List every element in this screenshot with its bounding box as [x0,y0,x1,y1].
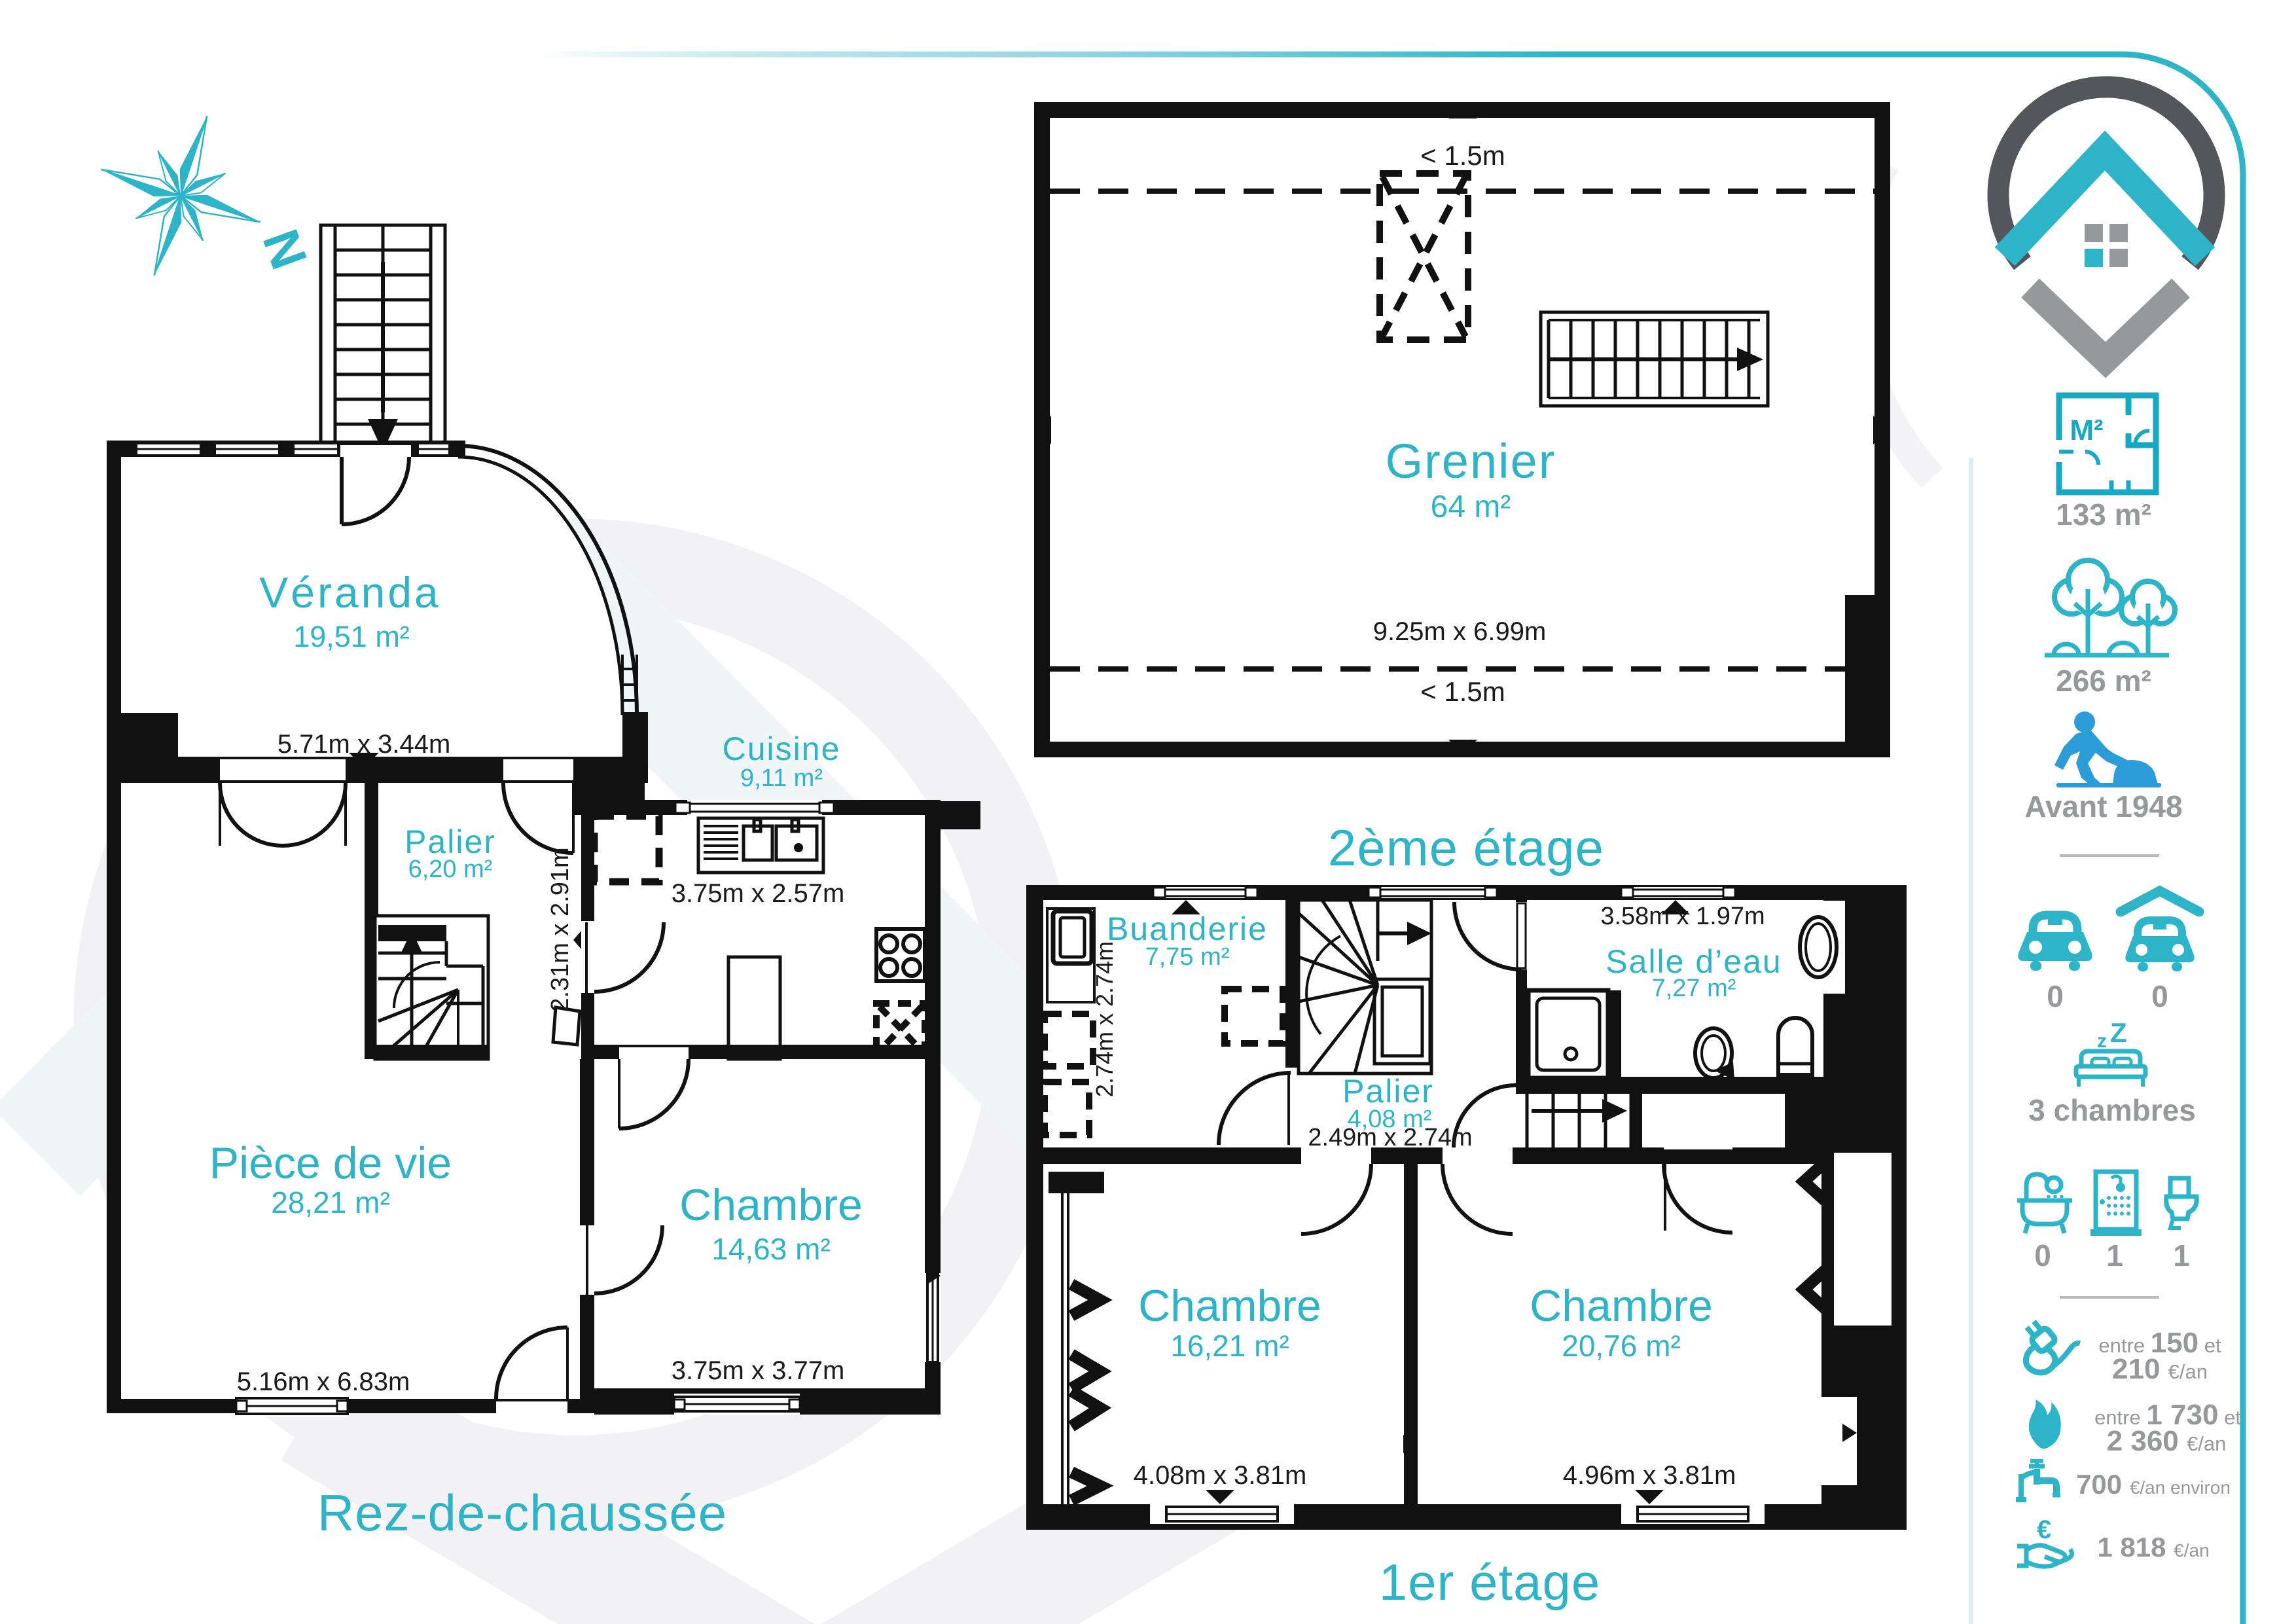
svg-text:266 m²: 266 m² [2056,664,2151,698]
svg-text:9.25m x 6.99m: 9.25m x 6.99m [1373,617,1547,646]
svg-text:Palier: Palier [404,823,496,860]
svg-text:Rez-de-chaussée: Rez-de-chaussée [317,1484,727,1542]
svg-text:2.31m x 2.91m: 2.31m x 2.91m [547,847,574,1011]
svg-text:3.58m x 1.97m: 3.58m x 1.97m [1600,903,1765,930]
svg-text:Véranda: Véranda [259,568,441,617]
svg-text:133 m²: 133 m² [2056,497,2151,532]
svg-text:Grenier: Grenier [1386,434,1556,488]
svg-text:Chambre: Chambre [1138,1281,1321,1331]
svg-text:Palier: Palier [1342,1073,1434,1110]
svg-text:7,27 m²: 7,27 m² [1652,975,1736,1002]
svg-text:9,11 m²: 9,11 m² [740,765,823,792]
svg-text:16,21 m²: 16,21 m² [1170,1329,1289,1363]
svg-text:14,63 m²: 14,63 m² [711,1232,831,1266]
svg-text:1er étage: 1er étage [1379,1553,1601,1611]
svg-text:Avant 1948: Avant 1948 [2024,789,2182,823]
svg-text:< 1.5m: < 1.5m [1420,140,1505,171]
svg-text:19,51 m²: 19,51 m² [293,620,410,653]
svg-text:64 m²: 64 m² [1431,490,1511,524]
svg-text:3 chambres: 3 chambres [2028,1093,2196,1127]
svg-text:6,20 m²: 6,20 m² [408,856,493,883]
svg-text:Chambre: Chambre [679,1180,863,1230]
svg-text:Chambre: Chambre [1530,1281,1713,1331]
svg-text:3.75m x 2.57m: 3.75m x 2.57m [672,879,845,908]
svg-text:0: 0 [2047,979,2064,1013]
svg-text:0: 0 [2151,979,2168,1013]
svg-text:Z: Z [2110,1017,2127,1048]
svg-text:5.16m x 6.83m: 5.16m x 6.83m [237,1367,410,1396]
svg-text:Pièce de vie: Pièce de vie [209,1138,452,1188]
svg-text:Cuisine: Cuisine [723,731,841,767]
svg-text:28,21 m²: 28,21 m² [271,1185,390,1219]
svg-text:€: € [2037,1515,2051,1544]
svg-text:1: 1 [2173,1238,2190,1272]
svg-text:4.08m x 3.81m: 4.08m x 3.81m [1134,1461,1307,1490]
svg-text:3.75m x 3.77m: 3.75m x 3.77m [672,1356,845,1385]
svg-text:1: 1 [2106,1238,2123,1272]
svg-text:2.74m x 2.74m: 2.74m x 2.74m [1091,941,1118,1097]
svg-text:2.49m x 2.74m: 2.49m x 2.74m [1308,1124,1472,1151]
svg-text:z: z [2097,1030,2107,1052]
svg-text:< 1.5m: < 1.5m [1420,676,1505,707]
svg-text:7,75 m²: 7,75 m² [1145,943,1230,971]
svg-text:2ème étage: 2ème étage [1328,819,1604,876]
svg-text:4.96m x 3.81m: 4.96m x 3.81m [1563,1461,1736,1490]
svg-text:5.71m x 3.44m: 5.71m x 3.44m [278,730,451,759]
svg-text:M²: M² [2070,414,2103,446]
svg-text:20,76 m²: 20,76 m² [1562,1329,1681,1363]
svg-text:Buanderie: Buanderie [1107,911,1268,947]
svg-text:0: 0 [2034,1238,2051,1272]
